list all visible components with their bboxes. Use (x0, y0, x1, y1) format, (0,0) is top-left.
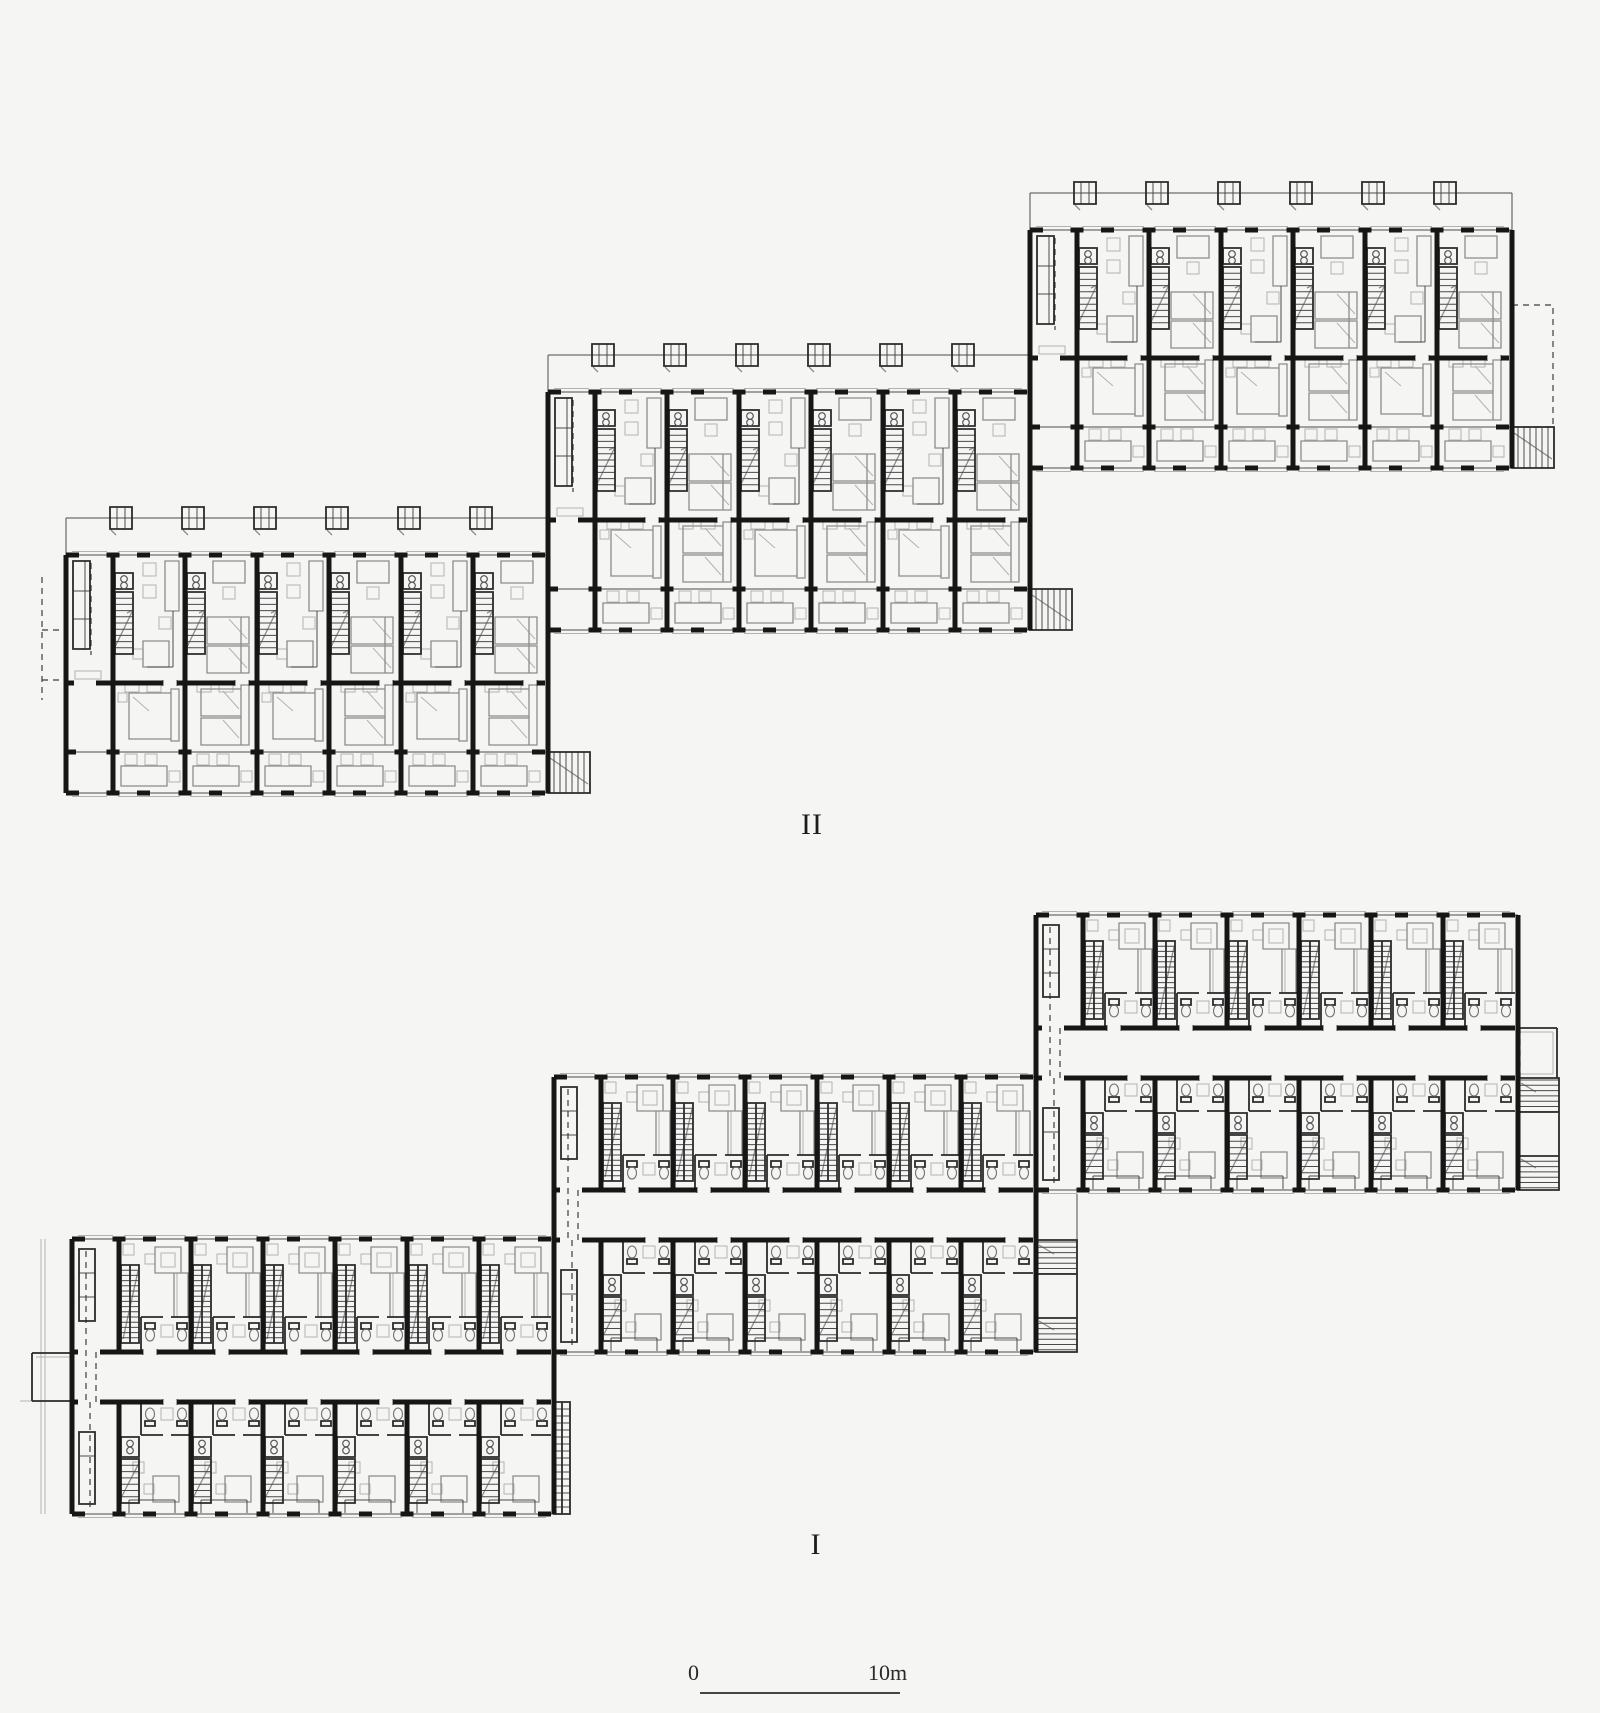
scale-ten-label: 10m (868, 1660, 907, 1686)
plan-i-block-a (20, 1236, 570, 1518)
scale-zero-label: 0 (688, 1660, 699, 1686)
plan-i-block-b (554, 1074, 1077, 1356)
plan-ii-block-b (548, 344, 1072, 634)
plan-i-block-c (1036, 912, 1559, 1194)
plan-label-ground-floor: I (811, 1528, 822, 1562)
plan-label-upper-floor: II (801, 808, 823, 842)
plan-ii-block-a (42, 507, 590, 797)
floor-plan-drawing: II I 0 10m (0, 0, 1600, 1713)
plan-ii-block-c (1030, 182, 1554, 472)
floor-plan-canvas (0, 0, 1600, 1713)
